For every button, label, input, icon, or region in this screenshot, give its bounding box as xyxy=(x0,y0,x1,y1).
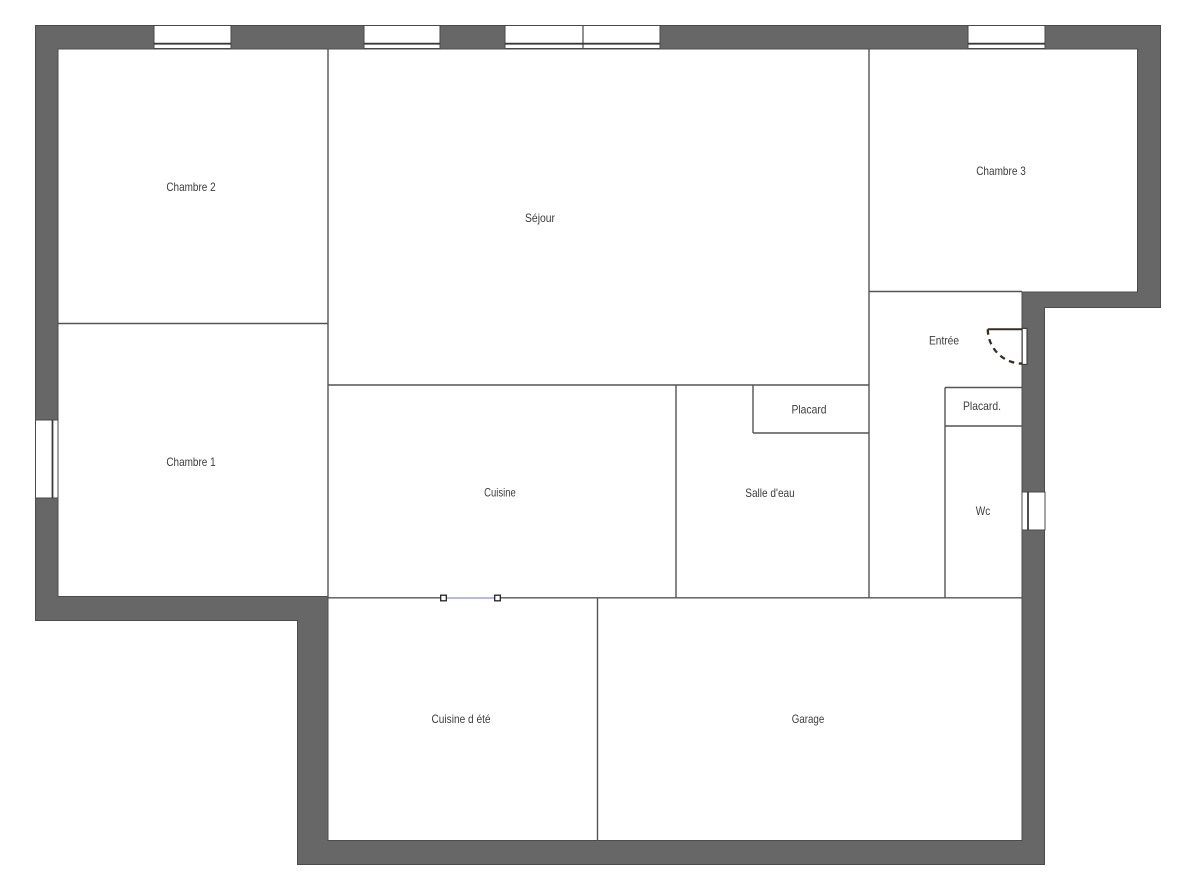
svg-text:Chambre 3: Chambre 3 xyxy=(976,164,1026,178)
svg-text:Entrée: Entrée xyxy=(929,334,959,348)
svg-text:Cuisine: Cuisine xyxy=(484,486,516,500)
svg-text:Wc: Wc xyxy=(976,504,991,518)
svg-text:Placard.: Placard. xyxy=(963,399,1001,413)
svg-text:Placard: Placard xyxy=(792,403,827,417)
svg-text:Chambre 1: Chambre 1 xyxy=(166,455,216,469)
svg-text:Chambre 2: Chambre 2 xyxy=(166,180,216,194)
svg-text:Garage: Garage xyxy=(792,712,825,726)
svg-text:Cuisine d été: Cuisine d été xyxy=(432,712,491,726)
svg-text:Séjour: Séjour xyxy=(525,211,555,225)
svg-text:Salle d'eau: Salle d'eau xyxy=(745,486,795,500)
